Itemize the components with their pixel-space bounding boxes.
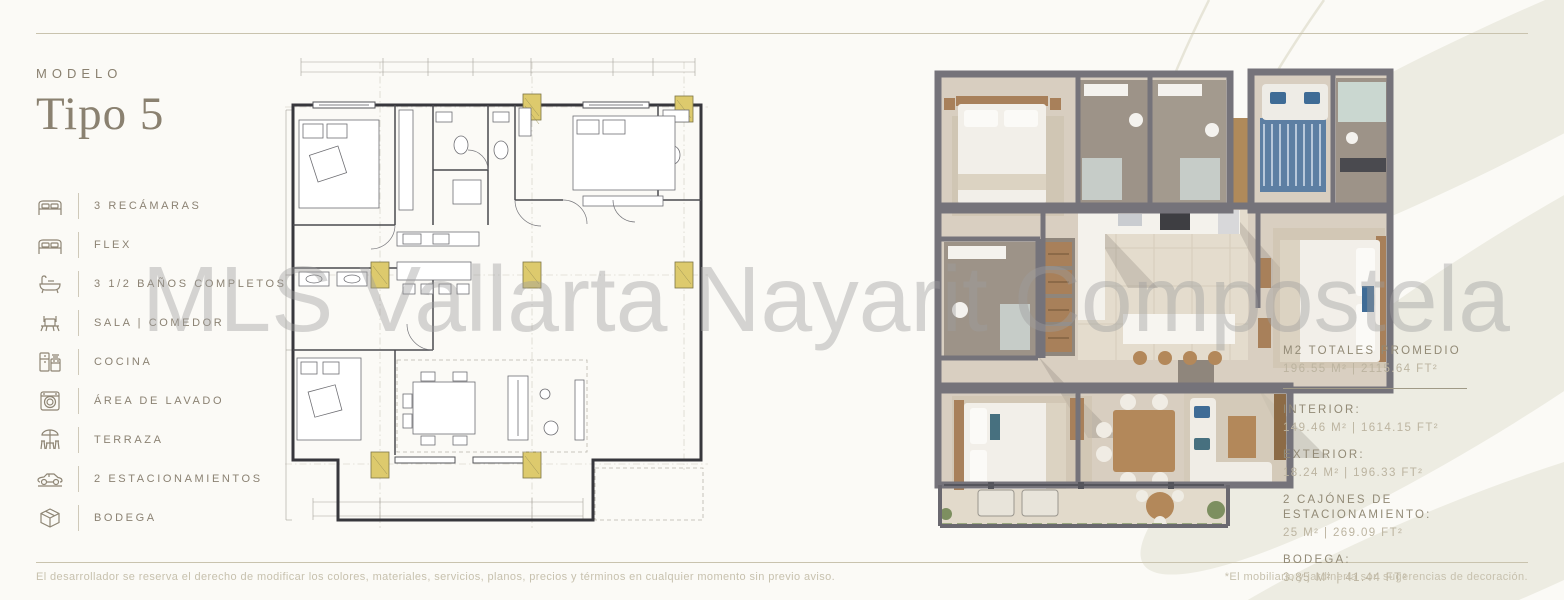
kitchen-icon	[34, 351, 66, 373]
feature-bedrooms: 3 RECÁMARAS	[34, 186, 287, 225]
stat-total-label: M2 TOTALES PROMEDIO	[1283, 344, 1483, 359]
model-header: MODELO Tipo 5	[36, 66, 164, 141]
feature-label: FLEX	[94, 239, 132, 251]
feature-label: 2 ESTACIONAMIENTOS	[94, 473, 263, 485]
divider	[78, 232, 79, 258]
stats-divider	[1283, 388, 1467, 389]
divider	[78, 193, 79, 219]
feature-parking: 2 ESTACIONAMIENTOS	[34, 459, 287, 498]
brochure-page: MODELO Tipo 5 3 RECÁMARAS	[0, 0, 1564, 600]
divider	[78, 388, 79, 414]
footer-disclaimer: El desarrollador se reserva el derecho d…	[36, 571, 835, 583]
divider	[78, 271, 79, 297]
feature-label: BODEGA	[94, 512, 157, 524]
feature-kitchen: COCINA	[34, 342, 287, 381]
top-rule	[36, 33, 1528, 34]
stat-parking: 2 CAJÓNES DE ESTACIONAMIENTO: 25 M² | 26…	[1283, 493, 1483, 540]
modelo-label: MODELO	[36, 66, 164, 81]
stat-value: 149.46 M² | 1614.15 FT²	[1283, 421, 1483, 435]
feature-living-dining: SALA | COMEDOR	[34, 303, 287, 342]
stat-total-value: 196.55 M² | 2115.64 FT²	[1283, 362, 1483, 376]
stat-value: 18.24 M² | 196.33 FT²	[1283, 466, 1483, 480]
feature-flex: FLEX	[34, 225, 287, 264]
divider	[78, 310, 79, 336]
stat-interior: INTERIOR: 149.46 M² | 1614.15 FT²	[1283, 403, 1483, 435]
feature-label: 3 1/2 BAÑOS COMPLETOS	[94, 278, 287, 290]
divider	[78, 427, 79, 453]
feature-laundry: ÁREA DE LAVADO	[34, 381, 287, 420]
bed-icon	[34, 196, 66, 216]
stat-value: 25 M² | 269.09 FT²	[1283, 526, 1483, 540]
feature-storage: BODEGA	[34, 498, 287, 537]
divider	[78, 349, 79, 375]
stat-exterior: EXTERIOR: 18.24 M² | 196.33 FT²	[1283, 448, 1483, 480]
car-icon	[34, 469, 66, 489]
footer-note: *El mobiliario y jardinería son sugerenc…	[1225, 571, 1528, 583]
feature-label: ÁREA DE LAVADO	[94, 395, 224, 407]
feature-label: SALA | COMEDOR	[94, 317, 224, 329]
feature-label: TERRAZA	[94, 434, 164, 446]
feature-label: 3 RECÁMARAS	[94, 200, 201, 212]
bathtub-icon	[34, 274, 66, 294]
feature-list: 3 RECÁMARAS FLEX 3 1/2	[34, 186, 287, 537]
terrace-icon	[34, 429, 66, 451]
page-title: Tipo 5	[36, 87, 164, 141]
feature-label: COCINA	[94, 356, 152, 368]
divider	[78, 466, 79, 492]
box-icon	[34, 507, 66, 529]
stat-label: INTERIOR:	[1283, 403, 1483, 418]
stat-label: EXTERIOR:	[1283, 448, 1483, 463]
technical-floorplan	[283, 50, 713, 540]
area-stats: M2 TOTALES PROMEDIO 196.55 M² | 2115.64 …	[1283, 344, 1483, 598]
washer-icon	[34, 390, 66, 412]
bed-icon	[34, 235, 66, 255]
feature-terrace: TERRAZA	[34, 420, 287, 459]
feature-bathrooms: 3 1/2 BAÑOS COMPLETOS	[34, 264, 287, 303]
stat-label: BODEGA:	[1283, 553, 1483, 568]
sofa-dining-icon	[34, 313, 66, 333]
divider	[78, 505, 79, 531]
stat-label: 2 CAJÓNES DE ESTACIONAMIENTO:	[1283, 493, 1483, 523]
